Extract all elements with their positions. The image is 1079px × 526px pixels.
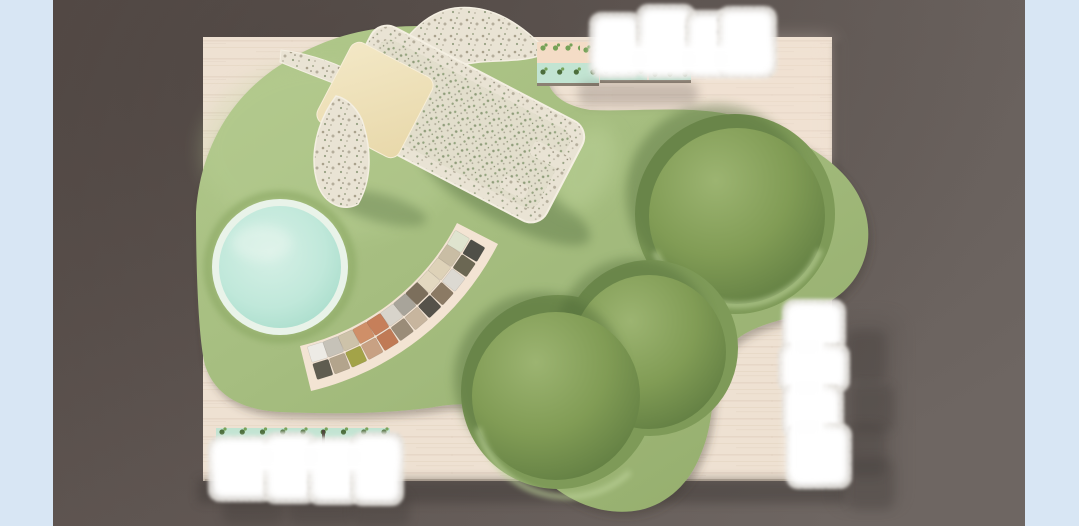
glow-bench-cluster-top-right — [589, 4, 777, 78]
glow-bar-core — [599, 48, 767, 70]
plant — [540, 69, 545, 74]
plant — [264, 427, 267, 430]
plant — [385, 427, 388, 430]
plant — [583, 47, 588, 52]
pool-highlight — [232, 225, 292, 261]
cast-shadow — [578, 82, 698, 106]
plant — [219, 429, 224, 434]
plant — [345, 427, 348, 430]
plant — [325, 427, 328, 430]
plant — [284, 427, 287, 430]
plant — [544, 43, 547, 46]
side-panel-left — [0, 0, 53, 526]
ball-pool — [208, 195, 352, 339]
plant — [341, 429, 346, 434]
plant — [574, 69, 579, 74]
glow-bench-cluster-bottom-left — [208, 432, 404, 506]
plant — [565, 45, 570, 50]
plant — [578, 67, 581, 70]
plant — [240, 429, 245, 434]
dome-cushion-left — [472, 312, 640, 480]
pool-water — [219, 206, 341, 328]
render-canvas — [0, 0, 1079, 526]
plant — [557, 43, 560, 46]
plant — [365, 427, 368, 430]
plant — [561, 67, 564, 70]
plant — [223, 427, 226, 430]
glow-bar-core — [217, 445, 395, 469]
plant — [544, 67, 547, 70]
plant — [244, 427, 247, 430]
plant — [304, 427, 307, 430]
glow-bench-cluster-right — [778, 299, 852, 489]
plant — [553, 45, 558, 50]
plant — [557, 69, 562, 74]
exhibition-room-render — [0, 0, 1079, 526]
side-panel-right — [1025, 0, 1079, 526]
plant — [540, 45, 545, 50]
glow-bar-core — [792, 311, 822, 477]
plant — [569, 43, 572, 46]
plant — [260, 429, 265, 434]
